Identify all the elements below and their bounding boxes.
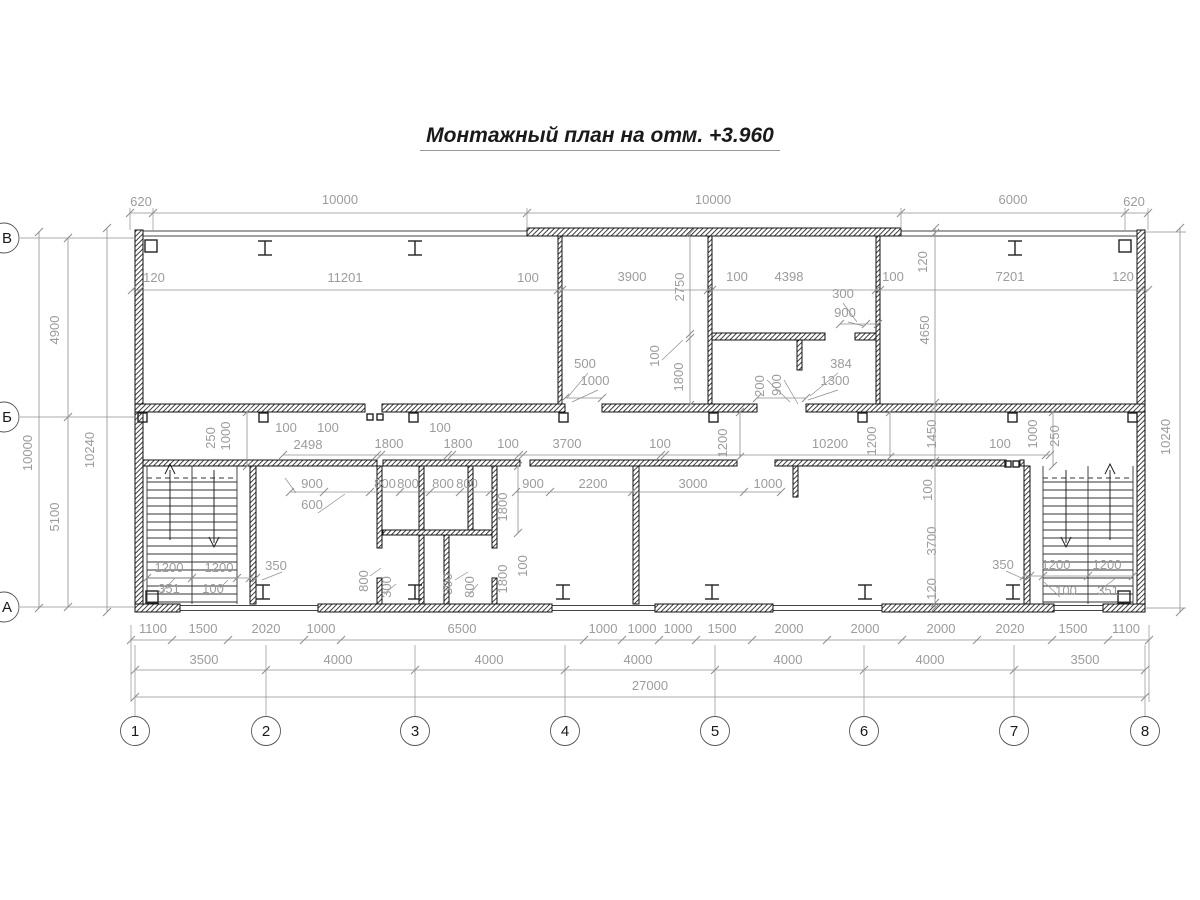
wall-segment (797, 340, 802, 370)
dimension-label: 100 (726, 269, 748, 284)
dimension-label: 200 (752, 375, 767, 397)
dimension-label: 2498 (294, 437, 323, 452)
dimension-label: 1500 (189, 621, 218, 636)
dimension-label: 100 (497, 436, 519, 451)
dimension-label: 800 (432, 476, 454, 491)
column-axis-marker-8: 8 (1131, 717, 1160, 746)
wall-segment (135, 230, 143, 612)
dimension-label: 250 (203, 427, 218, 449)
dimension-label: 2200 (579, 476, 608, 491)
row-axis-marker-А: А (0, 592, 19, 622)
dimension-label: 4000 (624, 652, 653, 667)
dimension-label: 1500 (1059, 621, 1088, 636)
dimension-label: 250 (1047, 425, 1062, 447)
column-axis-marker-7: 7 (1000, 717, 1029, 746)
leader-line (784, 380, 798, 404)
dimension-label: 4000 (475, 652, 504, 667)
dimension-label: 1000 (754, 476, 783, 491)
dimension-label: 800 (397, 476, 419, 491)
dimension-label: 4398 (775, 269, 804, 284)
dimension-label: 3700 (924, 527, 939, 556)
leader-line (808, 390, 838, 400)
dimension-label: 120 (143, 270, 165, 285)
dimension-label: 100 (920, 479, 935, 501)
door-jamb-marker (1013, 461, 1019, 467)
column-axis-marker-1: 1 (121, 717, 150, 746)
dimension-label: 3000 (679, 476, 708, 491)
dimension-label: 1100 (139, 621, 167, 636)
column-marker (858, 413, 867, 422)
wall-segment (876, 236, 880, 404)
dimension-label: 1000 (664, 621, 693, 636)
dimension-label: 350 (992, 557, 1014, 572)
dimension-label: 3500 (1071, 652, 1100, 667)
dimension-label: 6500 (448, 621, 477, 636)
wall-segment (143, 460, 377, 466)
dimension-label: 1800 (375, 436, 404, 451)
corner-column-marker (145, 240, 157, 252)
wall-segment (135, 604, 180, 612)
axis-label: 4 (561, 723, 569, 740)
column-marker (1128, 413, 1137, 422)
dimension-label: 100 (1055, 583, 1077, 598)
wall-segment (135, 404, 365, 412)
dimension-label: 2020 (252, 621, 281, 636)
dimension-label: 5100 (47, 503, 62, 532)
dimension-label: 1200 (1093, 557, 1122, 572)
wall-segment (383, 530, 497, 535)
axis-label: 3 (411, 723, 419, 740)
column-axis-marker-3: 3 (401, 717, 430, 746)
wall-segment (712, 333, 825, 340)
dimension-label: 800 (356, 570, 371, 592)
stairs-layer (147, 464, 1133, 604)
dimension-label: 10000 (322, 192, 358, 207)
dimension-label: 10200 (812, 436, 848, 451)
dimension-label: 1300 (821, 373, 850, 388)
drawing-sheet: Монтажный план на отм. +3.960 6201000010… (0, 0, 1200, 900)
corner-column-marker (1119, 240, 1131, 252)
column-marker (1008, 413, 1017, 422)
dimension-label: 800 (456, 476, 478, 491)
wall-segment (708, 236, 712, 404)
dimension-label: 2000 (775, 621, 804, 636)
column-axis-marker-6: 6 (850, 717, 879, 746)
dimension-label: 351 (1097, 583, 1119, 598)
leader-line (370, 568, 381, 576)
wall-segment (318, 604, 552, 612)
dimension-label: 2020 (996, 621, 1025, 636)
wall-segment (530, 460, 737, 466)
axis-label: 6 (860, 723, 868, 740)
dimension-label: 1200 (205, 560, 234, 575)
dimension-label: 100 (989, 436, 1011, 451)
dimension-label: 1800 (671, 363, 686, 392)
dimension-label: 6000 (999, 192, 1028, 207)
dimension-label: 351 (158, 581, 180, 596)
dimension-label: 100 (882, 269, 904, 284)
dimension-label: 3900 (618, 269, 647, 284)
axis-label: 1 (131, 723, 139, 740)
dimension-label: 10240 (82, 432, 97, 468)
dimension-label: 620 (130, 194, 152, 209)
corner-column-marker (1118, 591, 1130, 603)
axis-label: В (2, 230, 12, 247)
dimension-label: 1450 (924, 420, 939, 449)
dimension-label: 4900 (47, 316, 62, 345)
dimension-label: 900 (769, 374, 784, 396)
axis-label: 7 (1010, 723, 1018, 740)
dimension-label: 100 (515, 555, 530, 577)
column-axis-marker-2: 2 (252, 717, 281, 746)
corner-column-marker (146, 591, 158, 603)
wall-segment (793, 466, 798, 497)
wall-segment (1137, 230, 1145, 612)
wall-segment (527, 228, 901, 236)
dimension-label: 1000 (628, 621, 657, 636)
axis-label: А (2, 599, 12, 616)
axis-label: 2 (262, 723, 270, 740)
dimension-texts-layer: 6201000010000600062012011201100390010043… (20, 192, 1173, 693)
dimension-label: 4650 (917, 316, 932, 345)
column-axis-marker-5: 5 (701, 717, 730, 746)
wall-segment (1024, 466, 1030, 604)
dimension-label: 11201 (327, 270, 362, 285)
dimension-label: 900 (522, 476, 544, 491)
dimension-label: 600 (301, 497, 323, 512)
column-marker (259, 413, 268, 422)
floor-plan-canvas: 6201000010000600062012011201100390010043… (0, 0, 1200, 900)
dimension-label: 100 (275, 420, 297, 435)
dimension-label: 300 (379, 576, 394, 598)
leader-line (572, 390, 598, 402)
leader-line (662, 340, 683, 360)
dimension-label: 384 (830, 356, 852, 371)
dimension-label: 10000 (20, 435, 35, 471)
dimension-label: 100 (317, 420, 339, 435)
dimension-label: 620 (1123, 194, 1145, 209)
door-jamb-marker (377, 414, 383, 420)
dimension-label: 2000 (927, 621, 956, 636)
dimension-label: 27000 (632, 678, 668, 693)
wall-segment (250, 466, 256, 604)
dimension-label: 1000 (589, 621, 618, 636)
column-marker (709, 413, 718, 422)
dimension-label: 300 (440, 573, 455, 595)
dimension-label: 3500 (190, 652, 219, 667)
column-axis-marker-4: 4 (551, 717, 580, 746)
dimension-label: 350 (265, 558, 287, 573)
wall-segment (655, 604, 773, 612)
wall-segment (558, 236, 562, 404)
wall-segment (882, 604, 1054, 612)
dimension-label: 2000 (851, 621, 880, 636)
dimension-label: 1000 (218, 422, 233, 451)
wall-segment (855, 333, 876, 340)
row-axis-marker-В: В (0, 223, 19, 253)
dimension-label: 1500 (708, 621, 737, 636)
row-axis-marker-Б: Б (0, 402, 19, 432)
dimension-label: 4000 (774, 652, 803, 667)
wall-segment (1020, 460, 1024, 466)
dimension-label: 1000 (307, 621, 336, 636)
dimension-label: 10240 (1158, 419, 1173, 455)
axis-label: 8 (1141, 723, 1149, 740)
wall-segment (382, 404, 565, 412)
dimension-label: 120 (915, 251, 930, 273)
dimension-label: 1000 (581, 373, 610, 388)
dimension-label: 2750 (672, 273, 687, 302)
dimension-label: 100 (647, 345, 662, 367)
dimension-label: 900 (834, 305, 856, 320)
door-jamb-marker (367, 414, 373, 420)
dimension-label: 7201 (996, 269, 1025, 284)
dimension-label: 100 (429, 420, 451, 435)
dimension-label: 100 (517, 270, 539, 285)
dimension-label: 10000 (695, 192, 731, 207)
dimension-label: 1200 (864, 427, 879, 456)
axis-label: Б (2, 409, 12, 426)
dimension-label: 1800 (495, 565, 510, 594)
dimension-label: 100 (649, 436, 671, 451)
axis-label: 5 (711, 723, 719, 740)
wall-segment (633, 466, 639, 604)
dimension-label: 1800 (495, 493, 510, 522)
dimension-label: 1800 (444, 436, 473, 451)
dimension-label: 1200 (155, 560, 184, 575)
dimension-label: 4000 (324, 652, 353, 667)
dimension-label: 1100 (1112, 621, 1140, 636)
dimension-label: 800 (374, 476, 396, 491)
dimension-label: 1200 (715, 429, 730, 458)
leader-line (262, 572, 282, 580)
dimension-label: 500 (574, 356, 596, 371)
dimension-label: 900 (301, 476, 323, 491)
dimension-label: 1200 (1042, 557, 1071, 572)
dimension-label: 100 (202, 581, 224, 596)
dimension-label: 4000 (916, 652, 945, 667)
wall-segment (383, 460, 520, 466)
dimension-label: 1000 (1025, 420, 1040, 449)
wall-segment (775, 460, 1006, 466)
dimension-label: 120 (924, 578, 939, 600)
column-marker (409, 413, 418, 422)
leader-line (1006, 571, 1026, 580)
column-marker (559, 413, 568, 422)
wall-segment (1103, 604, 1145, 612)
dimension-label: 120 (1112, 269, 1134, 284)
wall-segment (602, 404, 757, 412)
dimension-label: 3700 (553, 436, 582, 451)
dimension-label: 300 (832, 286, 854, 301)
wall-segment (806, 404, 1145, 412)
dimension-label: 800 (462, 576, 477, 598)
